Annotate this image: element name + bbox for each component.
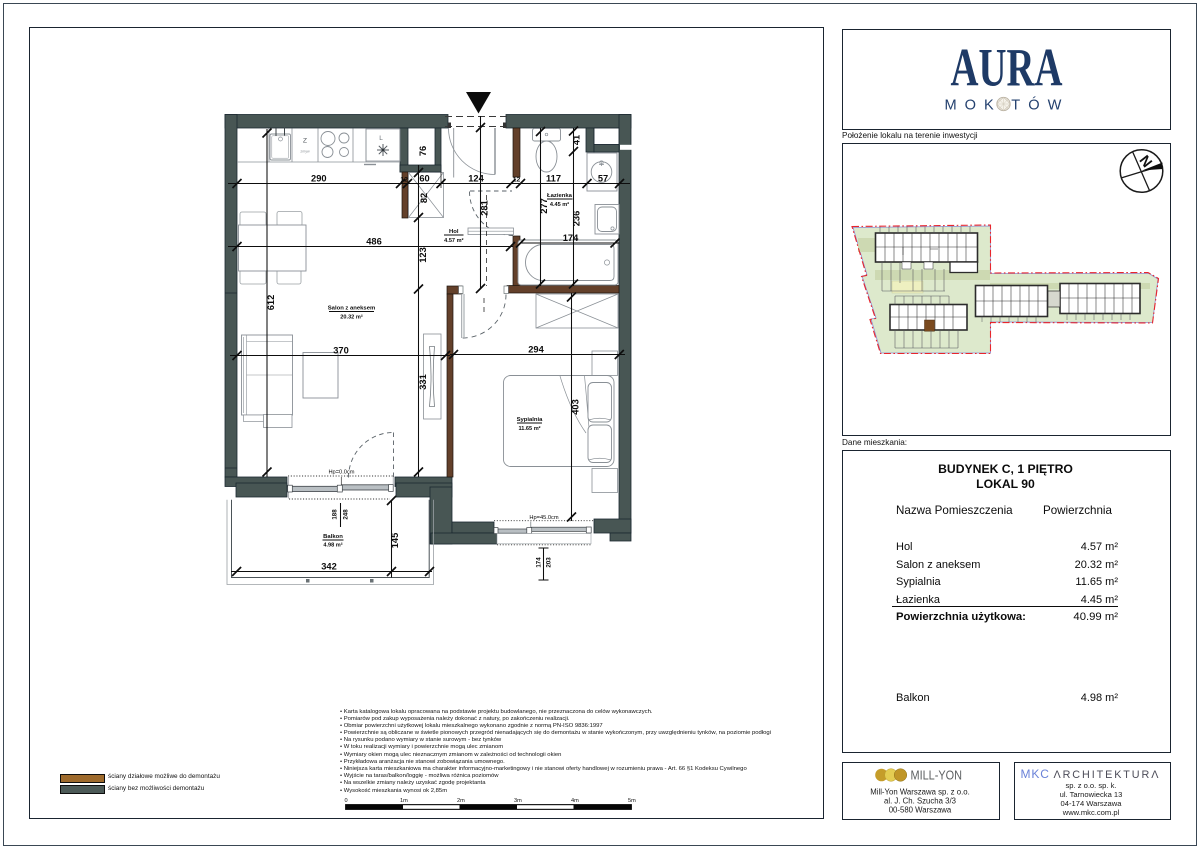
svg-text:2m: 2m [457,798,465,804]
svg-text:123: 123 [418,247,428,263]
svg-text:Balkon: Balkon [323,534,343,540]
svg-text:Z: Z [303,138,307,145]
svg-text:www.mkc.com.pl: www.mkc.com.pl [1061,808,1119,817]
svg-text:403: 403 [571,399,581,415]
svg-text:331: 331 [418,374,428,390]
svg-text:41: 41 [572,135,582,145]
svg-text:60: 60 [419,174,429,184]
svg-text:174: 174 [563,233,579,243]
svg-text:12: 12 [513,177,521,184]
svg-text:174: 174 [536,557,543,568]
svg-text:188: 188 [332,509,339,520]
svg-text:1m: 1m [400,798,408,804]
svg-text:294: 294 [528,345,544,355]
svg-text:4m: 4m [571,798,579,804]
svg-text:0: 0 [345,798,348,804]
svg-text:486: 486 [366,237,382,247]
svg-text:ul. Tarnowiecka 13: ul. Tarnowiecka 13 [1059,790,1122,799]
svg-text:Mill-Yon Warszawa sp. z o.o.: Mill-Yon Warszawa sp. z o.o. [870,787,970,796]
svg-text:612: 612 [266,295,276,311]
svg-text:4.98 m²: 4.98 m² [323,542,342,549]
svg-text:MKC: MKC [1020,767,1049,781]
svg-text:20.32 m²: 20.32 m² [340,314,363,321]
svg-text:MOK: MOK [945,97,1002,113]
svg-text:76: 76 [418,146,428,156]
svg-text:4.57 m²: 4.57 m² [444,237,463,244]
svg-text:203: 203 [546,557,553,568]
svg-text:TÓW: TÓW [1011,96,1069,113]
svg-text:Hp=45.0cm: Hp=45.0cm [529,515,559,521]
svg-text:AURA: AURA [951,37,1063,97]
svg-text:5m: 5m [628,798,636,804]
svg-text:117: 117 [546,174,561,184]
svg-text:al. J. Ch. Szucha 3/3: al. J. Ch. Szucha 3/3 [884,796,956,805]
svg-text:Hp=0.0cm: Hp=0.0cm [328,470,354,476]
svg-text:342: 342 [321,562,337,572]
svg-text:Salon z aneksem: Salon z aneksem [328,306,375,312]
svg-text:Łazienka: Łazienka [547,193,573,199]
svg-text:290: 290 [311,174,327,184]
svg-text:ΛRCHITEKTURΛ: ΛRCHITEKTURΛ [1053,769,1160,781]
svg-text:82: 82 [419,193,429,203]
svg-text:MILL-YON: MILL-YON [911,767,963,782]
svg-text:00-580 Warszawa: 00-580 Warszawa [889,805,952,814]
svg-text:zmyw: zmyw [300,150,310,154]
svg-text:sp. z o.o. sp. k.: sp. z o.o. sp. k. [1065,781,1116,790]
svg-text:248: 248 [343,509,350,520]
svg-text:124: 124 [468,174,484,184]
svg-text:277: 277 [539,198,549,214]
svg-text:4.45 m²: 4.45 m² [550,201,569,208]
svg-text:281: 281 [480,200,490,216]
svg-text:12: 12 [400,177,408,184]
svg-text:L: L [379,135,383,142]
svg-text:11.65 m²: 11.65 m² [518,425,540,432]
svg-text:145: 145 [390,533,400,549]
svg-text:04-174 Warszawa: 04-174 Warszawa [1060,799,1122,808]
svg-text:Hol: Hol [449,229,459,235]
svg-text:236: 236 [572,211,582,227]
svg-text:370: 370 [333,346,349,356]
svg-text:Sypialnia: Sypialnia [517,417,544,423]
svg-text:3m: 3m [514,798,522,804]
svg-text:57: 57 [598,174,608,184]
